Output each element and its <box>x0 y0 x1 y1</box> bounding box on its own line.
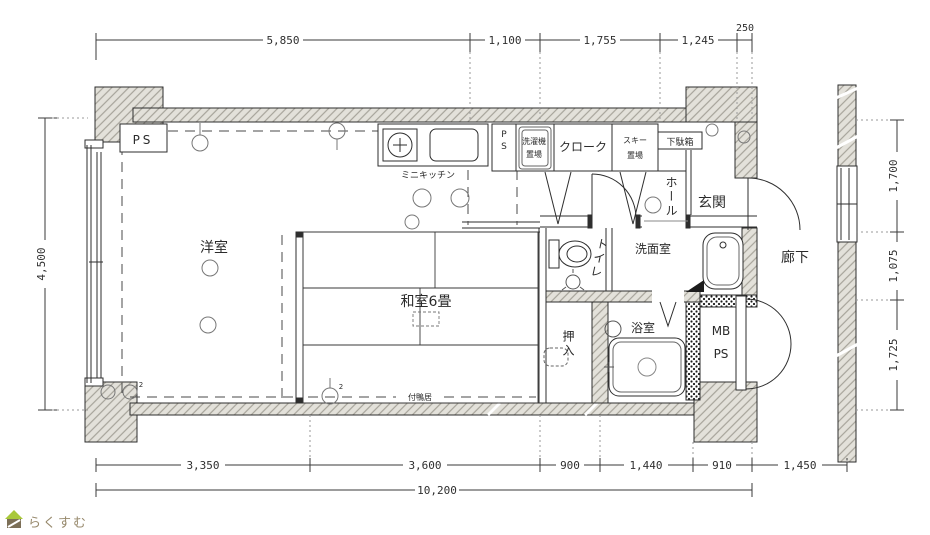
symbol-superscript-mid: 2 <box>339 383 343 391</box>
dim-top-3: 1,245 <box>681 34 714 47</box>
label-japanese-room: 和室6畳 <box>401 293 452 310</box>
label-mini-kitchen: ミニキッチン <box>401 170 455 181</box>
entrance-door-swing <box>748 178 800 230</box>
label-ps-top: PS <box>133 133 154 147</box>
corridor-window <box>837 166 857 242</box>
kitchen-counter <box>378 124 488 166</box>
label-closet: 押入 <box>561 330 575 358</box>
ceiling-dashed-lines <box>122 131 536 398</box>
bath-folding-door <box>660 302 676 326</box>
label-laundry-1: 洗濯機 <box>522 136 546 146</box>
mbps-double-door-swing <box>746 299 791 389</box>
dim-bottom-1: 3,600 <box>408 459 441 472</box>
toilet-icon <box>549 240 591 268</box>
balcony-window <box>85 140 103 386</box>
label-washroom: 洗面室 <box>635 241 671 256</box>
dim-bottom-4: 910 <box>712 459 732 472</box>
dim-bottom-0: 3,350 <box>186 459 219 472</box>
toilet-basin-icon <box>562 269 584 290</box>
mbps-door-frame <box>736 296 746 390</box>
dim-top-1: 1,100 <box>488 34 521 47</box>
dim-bottom-3: 1,440 <box>629 459 662 472</box>
label-getabako: 下駄箱 <box>666 136 693 148</box>
kitchen-sink-icon <box>430 129 478 161</box>
symbol-superscript-left: 2 <box>139 381 143 389</box>
dim-right-2: 1,725 <box>887 338 900 371</box>
wall-sanitary-top <box>540 215 757 228</box>
label-corridor: 廊下 <box>781 249 809 266</box>
label-mb: MB <box>712 324 731 338</box>
label-ps-meter: PS <box>714 347 729 361</box>
label-hall: ホール <box>664 176 678 218</box>
dim-left-0: 4,500 <box>35 247 48 280</box>
floor-plan-page: PS ミニキッチン PS 洗濯機 置場 クローク スキー 置場 下駄箱 ホール … <box>0 0 930 535</box>
label-tsukegamoi: 付鴨居 <box>408 392 432 402</box>
ski-box <box>612 124 658 171</box>
label-ps-shaft: PS <box>499 130 509 154</box>
tatami-layout <box>303 232 538 403</box>
label-laundry-2: 置場 <box>526 149 542 159</box>
dim-top-0: 5,850 <box>266 34 299 47</box>
logo-text: らくすむ <box>28 516 88 531</box>
dim-bottom-2: 900 <box>560 459 580 472</box>
dim-top-lines <box>96 33 752 60</box>
label-cloak: クローク <box>559 140 607 154</box>
floor-plan-canvas: PS ミニキッチン PS 洗濯機 置場 クローク スキー 置場 下駄箱 ホール … <box>0 0 930 535</box>
dimension-labels: 5,850 1,100 1,755 1,245 250 3,350 3,600 … <box>35 23 900 497</box>
vanity-sink-icon <box>686 233 743 292</box>
label-bathroom: 浴室 <box>631 320 655 335</box>
label-ski-2: 置場 <box>627 150 643 160</box>
interior-walls <box>296 150 757 403</box>
dim-top-4: 250 <box>736 23 754 34</box>
dim-bottom-5: 1,450 <box>783 459 816 472</box>
label-western-room: 洋室 <box>200 239 228 256</box>
label-ski-1: スキー <box>623 136 647 145</box>
label-genkan: 玄関 <box>698 194 726 211</box>
dim-top-2: 1,755 <box>583 34 616 47</box>
ski-folding-door <box>620 172 646 224</box>
logo-house-roof-icon <box>5 510 23 519</box>
dim-total-width: 10,200 <box>417 484 457 497</box>
dim-right-1: 1,075 <box>887 249 900 282</box>
site-logo: らくすむ <box>5 510 88 531</box>
dim-right-0: 1,700 <box>887 159 900 192</box>
dimension-lines <box>38 33 904 497</box>
washroom-corner-mark <box>686 280 704 292</box>
